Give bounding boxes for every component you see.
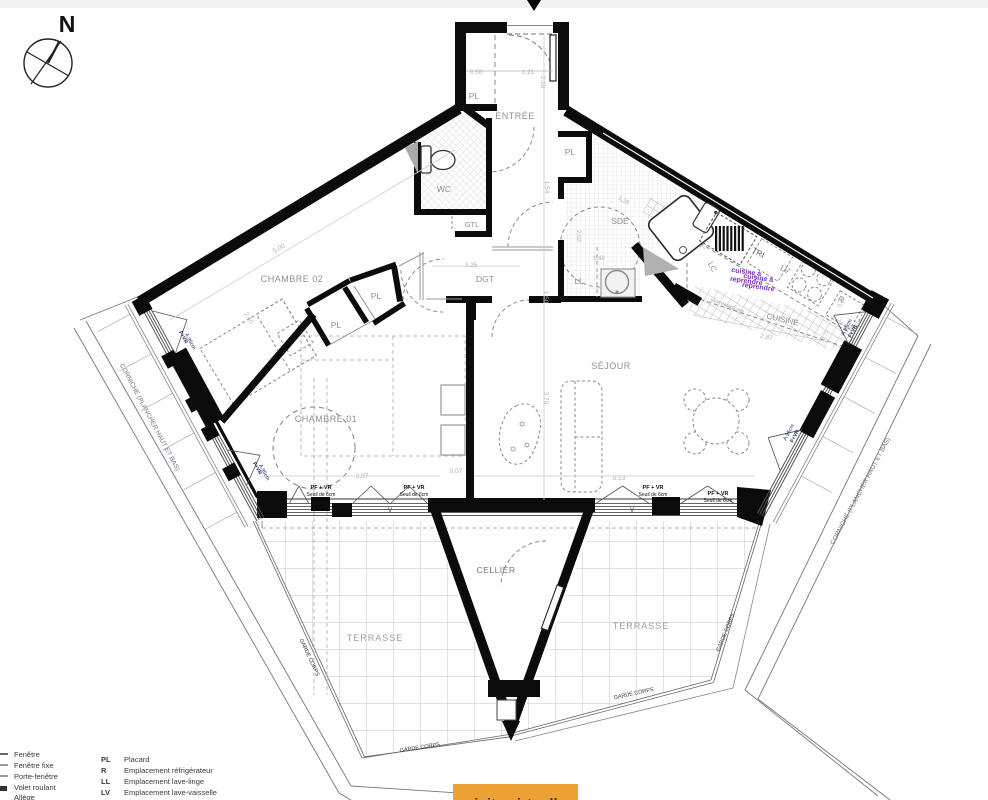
svg-text:ENTRÉE: ENTRÉE [495,111,535,121]
svg-text:Allège: Allège [14,793,35,800]
svg-text:PL: PL [331,320,342,330]
svg-text:PF + VR: PF + VR [311,485,332,491]
svg-text:DGT: DGT [476,274,494,284]
svg-text:CHAMBRE 01: CHAMBRE 01 [295,414,358,424]
svg-text:0,50: 0,50 [470,69,483,76]
svg-text:PL: PL [565,147,576,157]
svg-text:WC: WC [437,184,451,194]
svg-text:LV: LV [101,788,110,797]
svg-text:1,48: 1,48 [593,256,605,262]
svg-text:2,20: 2,20 [539,76,546,89]
svg-text:Fenêtre: Fenêtre [14,750,40,759]
svg-text:V: V [630,508,634,514]
svg-text:Seuil de 6cm: Seuil de 6cm [704,498,733,504]
svg-text:TERRASSE: TERRASSE [613,621,670,631]
svg-text:PF + VR: PF + VR [643,485,664,491]
svg-text:Placard: Placard [124,755,149,764]
svg-text:GTL: GTL [465,220,480,229]
svg-text:LL: LL [101,777,111,786]
svg-text:Seuil de 6cm: Seuil de 6cm [400,492,429,498]
svg-text:LL: LL [574,276,584,286]
svg-text:Seuil de 6cm: Seuil de 6cm [639,492,668,498]
svg-text:1,50: 1,50 [542,291,549,304]
svg-text:Emplacement réfrigérateur: Emplacement réfrigérateur [124,766,213,775]
svg-text:2,02: 2,02 [575,230,581,242]
svg-text:CELLIER: CELLIER [477,565,516,575]
svg-text:Volet roulant: Volet roulant [14,783,57,792]
svg-text:1,21: 1,21 [522,69,535,76]
svg-text:R: R [101,766,107,775]
svg-text:PF + VR: PF + VR [404,485,425,491]
svg-text:3,79: 3,79 [542,392,549,405]
svg-text:V: V [388,508,392,514]
svg-text:TERRASSE: TERRASSE [347,633,404,643]
svg-text:N: N [59,11,76,37]
svg-text:visite virtuelle: visite virtuelle [466,796,566,800]
svg-text:Fenêtre fixe: Fenêtre fixe [14,761,54,770]
svg-text:Porte-fenêtre: Porte-fenêtre [14,772,58,781]
svg-text:Seuil de 6cm: Seuil de 6cm [307,492,336,498]
svg-text:3,25: 3,25 [465,262,478,269]
svg-text:PF + VR: PF + VR [708,491,729,497]
svg-text:Emplacement lave-vaisselle: Emplacement lave-vaisselle [124,788,217,797]
svg-text:0,07: 0,07 [450,468,463,475]
svg-text:SÉJOUR: SÉJOUR [591,361,631,371]
svg-text:CHAMBRE 02: CHAMBRE 02 [261,274,324,284]
svg-text:PL: PL [469,91,480,101]
svg-text:SDE: SDE [611,216,629,226]
svg-text:3,97: 3,97 [356,473,369,480]
svg-text:PL: PL [101,755,111,764]
svg-text:PL: PL [371,291,382,301]
svg-text:Emplacement lave-linge: Emplacement lave-linge [124,777,204,786]
